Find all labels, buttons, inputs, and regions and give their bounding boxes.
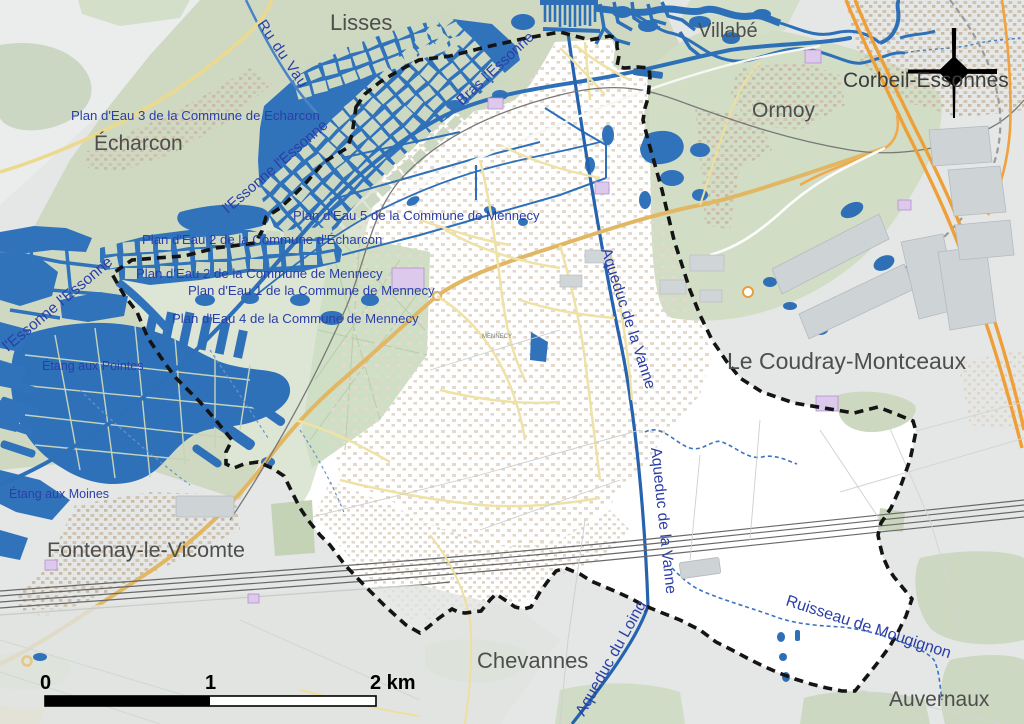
svg-text:Fontenay-le-Vicomte: Fontenay-le-Vicomte (47, 538, 245, 562)
svg-text:2 km: 2 km (370, 672, 416, 694)
svg-text:Plan d'Eau 2 de la Commune d'É: Plan d'Eau 2 de la Commune d'Écharcon (142, 232, 382, 247)
svg-text:Étang aux Moines: Étang aux Moines (9, 486, 109, 501)
svg-text:Plan d'Eau 1 de la Commune de: Plan d'Eau 1 de la Commune de Mennecy (188, 283, 435, 298)
svg-text:Écharcon: Écharcon (94, 132, 183, 155)
svg-text:Auvernaux: Auvernaux (889, 688, 990, 711)
svg-text:Plan d'Eau 3 de la Commune de: Plan d'Eau 3 de la Commune de Echarcon (71, 108, 320, 123)
svg-text:Plan d'Eau 2 de la Commune de: Plan d'Eau 2 de la Commune de Mennecy (136, 266, 383, 281)
svg-text:MENNECY: MENNECY (482, 334, 512, 340)
svg-text:Lisses: Lisses (330, 10, 392, 35)
svg-text:1: 1 (205, 672, 216, 694)
svg-text:Corbeil-Essonnes: Corbeil-Essonnes (843, 69, 1009, 92)
svg-text:Le Coudray-Montceaux: Le Coudray-Montceaux (727, 348, 967, 374)
svg-text:0: 0 (40, 672, 51, 694)
svg-text:Villabé: Villabé (698, 20, 758, 42)
svg-text:Chevannes: Chevannes (477, 648, 588, 673)
svg-text:Plan d'Eau 5 de la Commune de: Plan d'Eau 5 de la Commune de Mennecy (293, 208, 540, 223)
svg-text:Étang aux Pointes: Étang aux Pointes (42, 358, 143, 373)
svg-text:Plan d'Eau 4 de la Commune de: Plan d'Eau 4 de la Commune de Mennecy (172, 311, 419, 326)
svg-text:Ormoy: Ormoy (752, 99, 816, 122)
